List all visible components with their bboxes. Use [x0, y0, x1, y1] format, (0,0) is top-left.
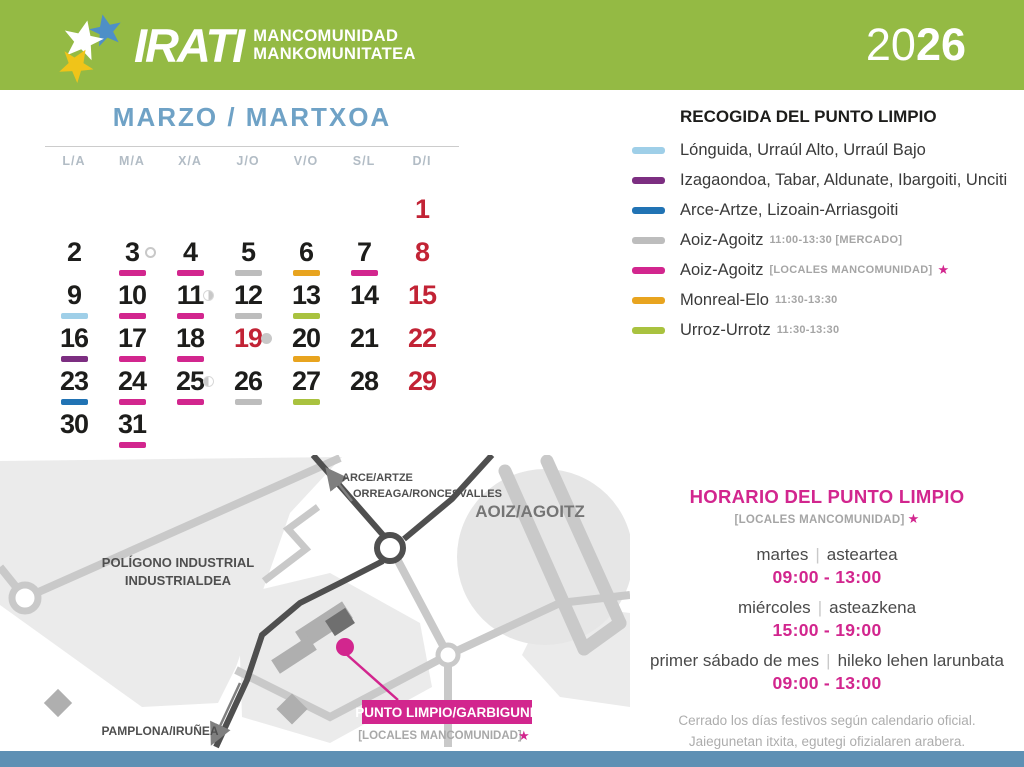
day-number: 16 — [60, 325, 88, 352]
org-line2: MANKOMUNITATEA — [253, 45, 416, 63]
calendar-day-8: 8 — [393, 239, 451, 282]
schedule-day-es: miércoles — [738, 598, 811, 617]
closed-note: Cerrado los días festivos según calendar… — [630, 711, 1024, 753]
calendar-day-5: 5 — [219, 239, 277, 282]
legend-time: 11:00-13:30 [MERCADO] — [769, 234, 902, 246]
schedule-day-names: miércoles|asteazkena — [630, 598, 1024, 618]
hours-title: HORARIO DEL PUNTO LIMPIO — [630, 486, 1024, 508]
schedule-row: miércoles|asteazkena15:00 - 19:00 — [630, 598, 1024, 641]
punto-limpio-marker — [336, 638, 354, 656]
hours-subtitle-star: ★ — [908, 511, 920, 526]
collection-underline-pink — [177, 313, 204, 319]
legend-label: Urroz-Urrotz — [680, 321, 771, 340]
day-number: 23 — [60, 368, 88, 395]
day-number: 25 — [176, 368, 204, 395]
legend-item: Aoiz-Agoitz[LOCALES MANCOMUNIDAD]★ — [630, 255, 1024, 285]
calendar-day-27: 27 — [277, 368, 335, 411]
legend-label: Arce-Artze, Lizoain-Arriasgoiti — [680, 201, 898, 220]
day-number: 29 — [408, 368, 436, 395]
collection-underline-gray — [235, 270, 262, 276]
year-suffix: 26 — [916, 19, 966, 70]
day-number: 10 — [118, 282, 146, 309]
collection-underline-pink — [119, 399, 146, 405]
calendar-poster: IRATI MANCOMUNIDAD MANKOMUNITATEA 2026 M… — [0, 0, 1024, 767]
calendar-day-11: 11 — [161, 282, 219, 325]
legend-swatch-icon — [632, 297, 665, 304]
legend-label: Monreal-Elo — [680, 291, 769, 310]
collection-underline-green — [293, 399, 320, 405]
weekday-header: S/L — [335, 154, 393, 168]
day-number: 4 — [183, 239, 197, 266]
calendar-day-20: 20 — [277, 325, 335, 368]
schedule-separator: | — [815, 545, 819, 564]
moon-phase-icon-last-quarter — [203, 290, 214, 301]
legend-item: Izagaondoa, Tabar, Aldunate, Ibargoiti, … — [630, 165, 1024, 195]
day-number: 24 — [118, 368, 146, 395]
schedule-day-eu: asteartea — [827, 545, 898, 564]
schedule-separator: | — [826, 651, 830, 670]
day-number: 7 — [357, 239, 371, 266]
direction-north-label-line2: ORREAGA/RONCESVALLES — [353, 488, 502, 500]
day-number: 3 — [125, 239, 139, 266]
day-number: 26 — [234, 368, 262, 395]
direction-south-label: PAMPLONA/IRUÑEA — [101, 723, 218, 738]
calendar-day-24: 24 — [103, 368, 161, 411]
schedule-day-es: primer sábado de mes — [650, 651, 819, 670]
collection-underline-blue — [61, 399, 88, 405]
calendar-day-31: 31 — [103, 411, 161, 454]
roundabout-main — [377, 535, 403, 561]
day-number: 5 — [241, 239, 255, 266]
legend-item: Monreal-Elo11:30-13:30 — [630, 285, 1024, 315]
collection-underline-gray — [235, 313, 262, 319]
calendar-day-4: 4 — [161, 239, 219, 282]
industrial-area-label-line2: INDUSTRIALDEA — [125, 573, 232, 588]
legend-time: 11:30-13:30 — [777, 324, 840, 336]
collection-underline-green — [293, 313, 320, 319]
month-calendar: MARZO / MARTXOA L/AM/AX/AJ/OV/OS/LD/I 12… — [45, 102, 459, 454]
legend-swatch-icon — [632, 207, 665, 214]
schedule-day-es: martes — [756, 545, 808, 564]
collection-underline-pink — [119, 442, 146, 448]
legend-item: Urroz-Urrotz11:30-13:30 — [630, 315, 1024, 345]
hours-subtitle-text: [LOCALES MANCOMUNIDAD] — [734, 514, 904, 526]
org-line1: MANCOMUNIDAD — [253, 27, 398, 45]
schedule-row: martes|asteartea09:00 - 13:00 — [630, 545, 1024, 588]
calendar-day-12: 12 — [219, 282, 277, 325]
day-number: 27 — [292, 368, 320, 395]
header-banner: IRATI MANCOMUNIDAD MANKOMUNITATEA 2026 — [0, 0, 1024, 90]
day-number: 8 — [415, 239, 429, 266]
calendar-day-6: 6 — [277, 239, 335, 282]
hours-subtitle: [LOCALES MANCOMUNIDAD]★ — [630, 511, 1024, 527]
calendar-day-1: 1 — [393, 196, 451, 239]
calendar-day-28: 28 — [335, 368, 393, 411]
legend-time: [LOCALES MANCOMUNIDAD] — [769, 264, 932, 276]
weekday-header-row: L/AM/AX/AJ/OV/OS/LD/I — [45, 154, 459, 168]
irati-logo: IRATI MANCOMUNIDAD MANKOMUNITATEA — [50, 5, 416, 85]
day-number: 21 — [350, 325, 378, 352]
collection-underline-pink — [119, 313, 146, 319]
day-number: 30 — [60, 411, 88, 438]
calendar-day-15: 15 — [393, 282, 451, 325]
calendar-day-7: 7 — [335, 239, 393, 282]
day-number: 13 — [292, 282, 320, 309]
calendar-day-13: 13 — [277, 282, 335, 325]
schedule-day-names: martes|asteartea — [630, 545, 1024, 565]
day-number: 31 — [118, 411, 146, 438]
calendar-day-3: 3 — [103, 239, 161, 282]
industrial-area-label-line1: POLÍGONO INDUSTRIAL — [102, 555, 254, 570]
year-prefix: 20 — [866, 19, 916, 70]
calendar-day-9: 9 — [45, 282, 103, 325]
month-title: MARZO / MARTXOA — [45, 102, 459, 133]
calendar-day-26: 26 — [219, 368, 277, 411]
day-number: 18 — [176, 325, 204, 352]
calendar-day-2: 2 — [45, 239, 103, 282]
calendar-day-23: 23 — [45, 368, 103, 411]
direction-north-label-line1: ARCE/ARTZE — [342, 472, 413, 484]
opening-hours-panel: HORARIO DEL PUNTO LIMPIO [LOCALES MANCOM… — [630, 486, 1024, 753]
schedule-time: 09:00 - 13:00 — [630, 673, 1024, 694]
collection-underline-pink — [177, 356, 204, 362]
legend-swatch-icon — [632, 237, 665, 244]
calendar-day-25: 25 — [161, 368, 219, 411]
collection-underline-orange — [293, 356, 320, 362]
marker-star: ★ — [518, 728, 530, 743]
calendar-day-18: 18 — [161, 325, 219, 368]
town-label: AOIZ/AGOITZ — [475, 502, 585, 521]
legend-item: Arce-Artze, Lizoain-Arriasgoiti — [630, 195, 1024, 225]
legend-swatch-icon — [632, 147, 665, 154]
weekday-header: L/A — [45, 154, 103, 168]
day-number: 19 — [234, 325, 262, 352]
legend-star-icon: ★ — [937, 262, 949, 278]
day-number: 20 — [292, 325, 320, 352]
collection-legend: RECOGIDA DEL PUNTO LIMPIO Lónguida, Urra… — [630, 107, 1024, 345]
collection-underline-pink — [119, 270, 146, 276]
calendar-day-14: 14 — [335, 282, 393, 325]
legend-label: Aoiz-Agoitz — [680, 231, 763, 250]
schedule-separator: | — [818, 598, 822, 617]
legend-time: 11:30-13:30 — [775, 294, 838, 306]
day-number: 28 — [350, 368, 378, 395]
legend-label: Aoiz-Agoitz — [680, 261, 763, 280]
collection-underline-pink — [351, 270, 378, 276]
day-number: 9 — [67, 282, 81, 309]
day-number: 11 — [177, 282, 204, 309]
schedule-row: primer sábado de mes|hileko lehen larunb… — [630, 651, 1024, 694]
weekday-header: V/O — [277, 154, 335, 168]
schedule-day-names: primer sábado de mes|hileko lehen larunb… — [630, 651, 1024, 671]
year-label: 2026 — [866, 19, 966, 71]
collection-underline-pink — [177, 270, 204, 276]
weekday-header: J/O — [219, 154, 277, 168]
schedule-day-eu: hileko lehen larunbata — [838, 651, 1004, 670]
calendar-grid: 1234567891011121314151617181920212223242… — [45, 196, 459, 454]
legend-swatch-icon — [632, 327, 665, 334]
legend-item: Aoiz-Agoitz11:00-13:30 [MERCADO] — [630, 225, 1024, 255]
calendar-day-17: 17 — [103, 325, 161, 368]
weekday-header: X/A — [161, 154, 219, 168]
roundabout-south — [438, 645, 458, 665]
legend-label: Lónguida, Urraúl Alto, Urraúl Bajo — [680, 141, 926, 160]
collection-underline-pink — [177, 399, 204, 405]
marker-label: PUNTO LIMPIO/GARBIGUNE — [355, 705, 539, 720]
calendar-day-19: 19 — [219, 325, 277, 368]
schedule-time: 15:00 - 19:00 — [630, 620, 1024, 641]
day-number: 2 — [67, 239, 81, 266]
day-number: 6 — [299, 239, 313, 266]
legend-title: RECOGIDA DEL PUNTO LIMPIO — [680, 107, 1024, 129]
legend-label: Izagaondoa, Tabar, Aldunate, Ibargoiti, … — [680, 171, 1007, 190]
weekday-header: D/I — [393, 154, 451, 168]
legend-list: Lónguida, Urraúl Alto, Urraúl BajoIzagao… — [630, 135, 1024, 345]
day-number: 22 — [408, 325, 436, 352]
legend-item: Lónguida, Urraúl Alto, Urraúl Bajo — [630, 135, 1024, 165]
brand-name: IRATI — [134, 18, 243, 73]
collection-underline-lightblue — [61, 313, 88, 319]
closed-note-line1: Cerrado los días festivos según calendar… — [630, 711, 1024, 732]
calendar-day-30: 30 — [45, 411, 103, 454]
org-name: MANCOMUNIDAD MANKOMUNITATEA — [253, 27, 416, 63]
weekday-header: M/A — [103, 154, 161, 168]
schedule-day-eu: asteazkena — [829, 598, 916, 617]
roundabout-west — [12, 585, 38, 611]
day-number: 12 — [234, 282, 262, 309]
collection-underline-purple — [61, 356, 88, 362]
closed-note-line2: Jaiegunetan itxita, egutegi ofizialaren … — [630, 732, 1024, 753]
marker-sub-label: [LOCALES MANCOMUNIDAD] — [358, 730, 522, 742]
moon-phase-icon-full — [145, 247, 156, 258]
collection-underline-orange — [293, 270, 320, 276]
calendar-day-22: 22 — [393, 325, 451, 368]
collection-underline-pink — [119, 356, 146, 362]
schedule-time: 09:00 - 13:00 — [630, 567, 1024, 588]
calendar-day-21: 21 — [335, 325, 393, 368]
collection-underline-gray — [235, 399, 262, 405]
calendar-day-16: 16 — [45, 325, 103, 368]
legend-swatch-icon — [632, 177, 665, 184]
stars-logo-icon — [50, 5, 130, 85]
schedule-rows: martes|asteartea09:00 - 13:00miércoles|a… — [630, 545, 1024, 694]
title-divider — [45, 146, 459, 147]
location-map: POLÍGONO INDUSTRIAL INDUSTRIALDEA AOIZ/A… — [0, 455, 630, 750]
legend-swatch-icon — [632, 267, 665, 274]
day-number: 15 — [408, 282, 436, 309]
footer-bar — [0, 751, 1024, 767]
day-number: 1 — [415, 196, 429, 223]
calendar-day-10: 10 — [103, 282, 161, 325]
moon-phase-icon-new — [261, 333, 272, 344]
moon-phase-icon-first-quarter — [203, 376, 214, 387]
day-number: 14 — [350, 282, 378, 309]
day-number: 17 — [118, 325, 146, 352]
calendar-day-29: 29 — [393, 368, 451, 411]
